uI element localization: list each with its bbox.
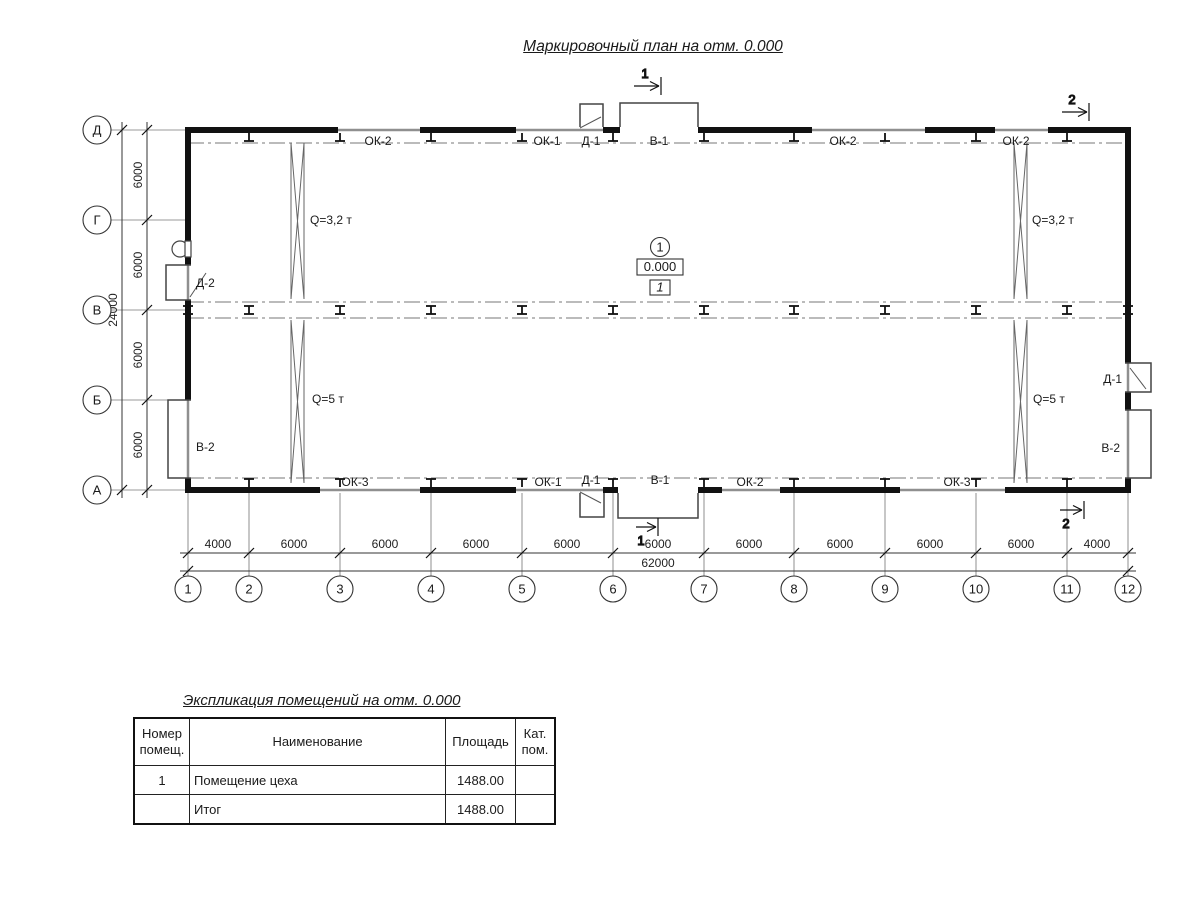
section-mark-label: 1	[641, 66, 648, 81]
window-label: ОК-1	[535, 475, 562, 489]
axis-col-label: 10	[969, 582, 983, 597]
door-label: Д-1	[582, 473, 601, 487]
window-label: ОК-3	[944, 475, 971, 489]
dim-label: 6000	[917, 537, 944, 551]
cell-room-area: 1488.00	[446, 766, 516, 795]
building-walls	[185, 127, 1131, 493]
room-schedule-title: Экспликация помещений на отм. 0.000	[183, 692, 460, 709]
door-label: Д-2	[196, 276, 215, 290]
cell-room-category	[516, 795, 556, 825]
floor-plan-canvas: 4000 6000 6000 6000 6000 6000 6000 6000 …	[0, 0, 1200, 660]
dim-label: 6000	[131, 161, 145, 188]
gate-label: В-2	[196, 440, 215, 454]
dim-label: 4000	[205, 537, 232, 551]
room-number: 1	[656, 240, 663, 255]
axis-col-label: 6	[609, 582, 616, 597]
header-area: Площадь	[446, 718, 516, 766]
dim-label: 6000	[463, 537, 490, 551]
room-marker: 1 0.000 1	[637, 238, 683, 296]
extension-lines	[111, 130, 1128, 576]
room-tag: 1	[656, 280, 663, 295]
dim-label: 6000	[554, 537, 581, 551]
table-row: 1 Помещение цеха 1488.00	[134, 766, 555, 795]
axis-grid-lines	[188, 143, 1128, 478]
gate-label: В-1	[651, 473, 670, 487]
door-label: Д-1	[582, 134, 601, 148]
axis-row-label: А	[93, 483, 102, 498]
axis-col-label: 3	[336, 582, 343, 597]
dim-label: 6000	[827, 537, 854, 551]
vestibule-bottom-d1	[580, 493, 604, 517]
dimension-lines: 4000 6000 6000 6000 6000 6000 6000 6000 …	[106, 122, 1136, 576]
cell-room-name: Помещение цеха	[190, 766, 446, 795]
window-label: ОК-2	[365, 134, 392, 148]
dim-label: 6000	[131, 341, 145, 368]
dim-label: 6000	[736, 537, 763, 551]
header-name: Наименование	[190, 718, 446, 766]
axis-col-label: 4	[427, 582, 434, 597]
axis-row-label: Д	[93, 123, 102, 138]
room-schedule-table: Номер помещ. Наименование Площадь Кат. п…	[133, 717, 556, 825]
axis-row-label: Б	[93, 393, 102, 408]
window-label: ОК-2	[737, 475, 764, 489]
cell-room-category	[516, 766, 556, 795]
crane-runways	[291, 143, 1027, 483]
axis-col-label: 8	[790, 582, 797, 597]
crane-capacity-label: Q=5 т	[312, 392, 344, 406]
axis-col-label: 1	[184, 582, 191, 597]
window-label: ОК-1	[534, 134, 561, 148]
dim-label: 6000	[281, 537, 308, 551]
dim-total-label: 62000	[641, 556, 675, 570]
cell-room-number	[134, 795, 190, 825]
crane-capacity-label: Q=3,2 т	[1032, 213, 1074, 227]
section-mark-label: 2	[1062, 516, 1069, 531]
crane-capacity-label: Q=5 т	[1033, 392, 1065, 406]
dim-label: 4000	[1084, 537, 1111, 551]
vestibule-top-d1	[580, 104, 603, 127]
axis-col-label: 5	[518, 582, 525, 597]
elevation-mark: 0.000	[644, 259, 677, 274]
cell-room-number: 1	[134, 766, 190, 795]
vestibules	[166, 103, 1151, 518]
dim-label: 6000	[131, 251, 145, 278]
axis-row-label: В	[93, 303, 102, 318]
crane-capacity-label: Q=3,2 т	[310, 213, 352, 227]
axis-bubbles: Д Г В Б А 1 2 3 4 5 6 7 8 9 10 11 12	[83, 116, 1141, 602]
gate-label: В-1	[650, 134, 669, 148]
window-label: ОК-3	[342, 475, 369, 489]
opening-labels: ОК-2 ОК-1 Д-1 В-1 ОК-2 ОК-2 ОК-3 ОК-1 Д-…	[196, 134, 1122, 489]
section-mark-label: 1	[637, 533, 644, 548]
axis-row-label: Г	[93, 213, 100, 228]
crane-capacity-labels: Q=3,2 т Q=5 т Q=3,2 т Q=5 т	[310, 213, 1074, 406]
header-room-number: Номер помещ.	[134, 718, 190, 766]
dim-label: 6000	[1008, 537, 1035, 551]
axis-col-label: 2	[245, 582, 252, 597]
axis-col-label: 12	[1121, 582, 1135, 597]
section-mark-label: 2	[1068, 92, 1075, 107]
gate-label: В-2	[1101, 441, 1120, 455]
vestibule-top-v1	[620, 103, 698, 127]
table-header-row: Номер помещ. Наименование Площадь Кат. п…	[134, 718, 555, 766]
dimension-ticks	[117, 125, 1133, 576]
columns	[183, 133, 1133, 487]
table-row: Итог 1488.00	[134, 795, 555, 825]
axis-col-label: 9	[881, 582, 888, 597]
axis-col-label: 7	[700, 582, 707, 597]
window-label: ОК-2	[830, 134, 857, 148]
dim-label: 6000	[645, 537, 672, 551]
door-label: Д-1	[1103, 372, 1122, 386]
dim-label: 6000	[131, 431, 145, 458]
dim-label: 6000	[372, 537, 399, 551]
vestibule-bottom-v1	[618, 493, 698, 518]
cell-room-area: 1488.00	[446, 795, 516, 825]
cell-room-name: Итог	[190, 795, 446, 825]
header-category: Кат. пом.	[516, 718, 556, 766]
window-label: ОК-2	[1003, 134, 1030, 148]
axis-col-label: 11	[1060, 582, 1074, 597]
